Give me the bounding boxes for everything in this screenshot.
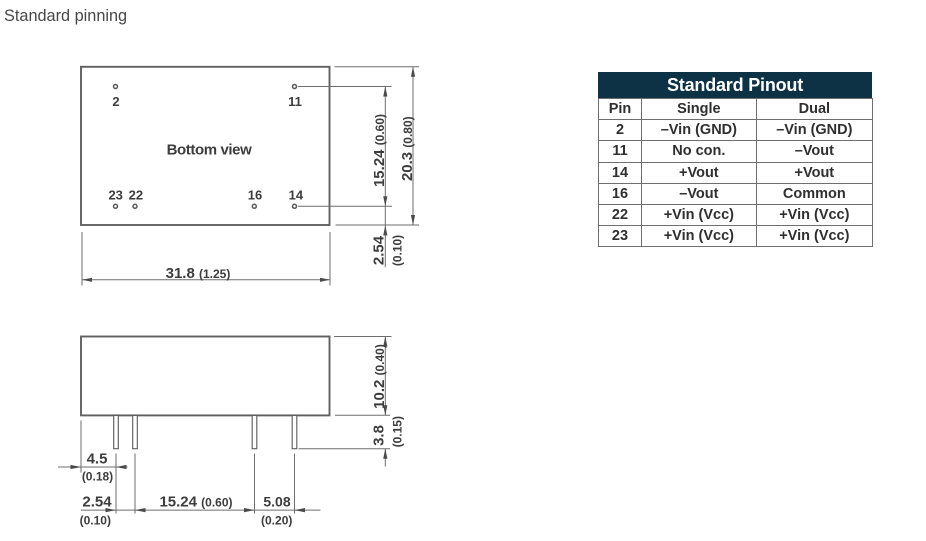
svg-text:10.2 (0.40): 10.2 (0.40) — [371, 344, 388, 409]
svg-text:(0.18): (0.18) — [82, 470, 113, 484]
svg-text:(0.10): (0.10) — [80, 514, 111, 528]
svg-text:2.54: 2.54 — [371, 235, 388, 265]
svg-text:(0.20): (0.20) — [261, 514, 292, 528]
svg-text:23: 23 — [108, 188, 122, 203]
svg-text:16: 16 — [248, 188, 262, 203]
svg-text:14: 14 — [289, 188, 304, 203]
svg-text:15.24 (0.60): 15.24 (0.60) — [371, 114, 388, 187]
svg-text:4.5: 4.5 — [87, 451, 108, 468]
svg-text:(0.15): (0.15) — [391, 416, 405, 447]
svg-text:20.3 (0.80): 20.3 (0.80) — [399, 116, 416, 181]
svg-text:31.8 (1.25): 31.8 (1.25) — [166, 265, 231, 282]
svg-text:22: 22 — [129, 188, 143, 203]
svg-text:Bottom view: Bottom view — [167, 142, 253, 159]
svg-text:15.24 (0.60): 15.24 (0.60) — [159, 494, 232, 511]
svg-text:11: 11 — [288, 94, 302, 109]
svg-text:3.8: 3.8 — [371, 425, 388, 446]
svg-text:2: 2 — [112, 94, 119, 109]
svg-text:(0.10): (0.10) — [391, 235, 405, 266]
svg-text:5.08: 5.08 — [263, 494, 290, 510]
svg-text:2.54: 2.54 — [82, 494, 112, 511]
